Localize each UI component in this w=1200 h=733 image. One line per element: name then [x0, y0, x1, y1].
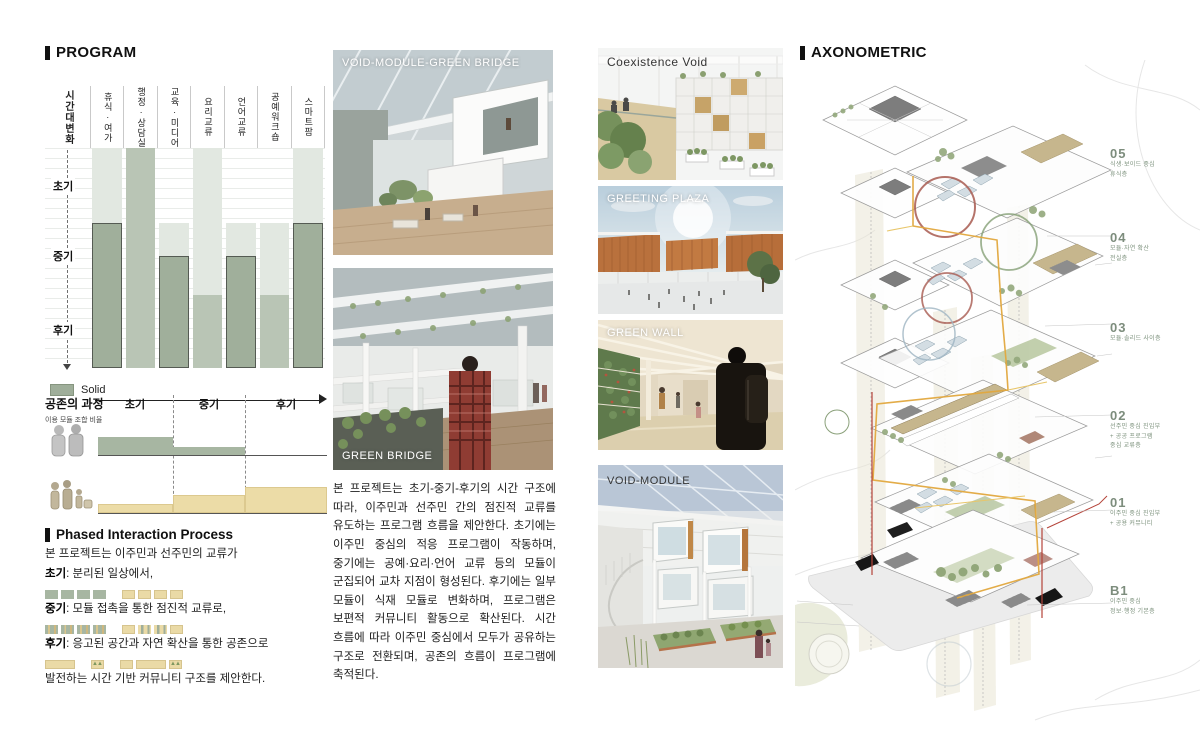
process-title: 공존의 과정 [45, 395, 104, 412]
module-swatch-g [45, 590, 58, 599]
floor-label-01: 01이주민 중심 진입부+ 공용 커뮤니티 [1110, 495, 1161, 529]
program-chart: 시간대변화 휴식·여가행정·상담실교육·미디어요리교류언어교류공예워크숍스마트팜… [45, 86, 325, 368]
floor-label-03: 03모듈·솔리드 사이층 [1110, 320, 1161, 345]
module-swatch-tg [138, 625, 151, 634]
module-swatch-gt [45, 625, 58, 634]
module-swatch-gap [78, 660, 88, 669]
column-header-0: 휴식·여가 [90, 86, 123, 148]
module-swatch-tt [169, 660, 182, 669]
coexistence-process-chart: 공존의 과정 이용 모듈 조합 비율 초기중기후기 [45, 383, 327, 525]
module-swatch-t [170, 625, 183, 634]
module-swatch-t [138, 590, 151, 599]
render-label: Coexistence Void [607, 55, 708, 69]
process-bar-tan-modules-1 [173, 495, 245, 513]
phased-item-1: 중기: 모듈 접촉을 통한 점진적 교류로, [45, 602, 332, 617]
program-bar-6 [293, 148, 323, 368]
floor-number: 01 [1110, 495, 1161, 510]
process-bar-tan-modules-0 [98, 504, 173, 513]
process-bar-tan-modules-2 [245, 487, 327, 513]
render-green-wall: GREEN WALL [598, 320, 783, 450]
module-swatch-gt [93, 625, 106, 634]
floor-description: 모듈·자연 확산 [1110, 245, 1149, 255]
program-bar-5 [260, 148, 290, 368]
column-header-3: 요리교류 [190, 86, 223, 148]
process-arrow-icon [319, 394, 332, 404]
program-bar-1 [126, 148, 156, 368]
phased-items: 초기: 분리된 일상에서,중기: 모듈 접촉을 통한 점진적 교류로,후기: 응… [45, 567, 332, 667]
module-swatch-gap [107, 660, 117, 669]
floor-label-02: 02선주민 중심 진입부+ 공공 프로그램중심 교류층 [1110, 408, 1161, 452]
module-swatch-t [122, 590, 135, 599]
program-chart-body: 초기중기후기 [45, 148, 325, 368]
title-bar-mark [45, 46, 50, 60]
floor-description: 이주민 중심 [1110, 598, 1155, 608]
floor-description: 휴식층 [1110, 171, 1155, 181]
module-swatch-row-1 [45, 621, 332, 632]
program-bars [90, 148, 325, 368]
render-label: GREETING PLAZA [607, 193, 709, 205]
program-title: PROGRAM [56, 44, 136, 61]
floor-label-05: 05식생·보이드 중심휴식층 [1110, 146, 1155, 180]
render-void-module-green-bridge: VOID-MODULE-GREEN BRIDGE [333, 50, 553, 255]
render-label: VOID-MODULE-GREEN BRIDGE [342, 57, 520, 69]
phased-intro: 본 프로젝트는 이주민과 선주민의 교류가 [45, 547, 332, 562]
floor-number: 02 [1110, 408, 1161, 423]
module-swatch-g [77, 590, 90, 599]
render-greeting-plaza: GREETING PLAZA [598, 186, 783, 314]
floor-number: 05 [1110, 146, 1155, 161]
render-green-bridge: GREEN BRIDGE [333, 268, 553, 470]
module-swatch-g [93, 590, 106, 599]
process-phase-중기: 중기 [199, 396, 219, 412]
axonometric-title: AXONOMETRIC [811, 44, 927, 61]
time-axis-label: 시간대변화 [45, 86, 90, 148]
module-swatch-gt [61, 625, 74, 634]
module-swatch-t [122, 625, 135, 634]
project-description: 본 프로젝트는 초기-중기-후기의 시간 구조에 따라, 이주민과 선주민 간의… [333, 480, 556, 685]
time-axis-arrow-icon [63, 364, 71, 374]
module-swatch-tg [154, 625, 167, 634]
module-swatch-t [170, 590, 183, 599]
program-bar-4 [226, 148, 256, 368]
module-swatch-gap [109, 590, 119, 599]
phase-label-후기: 후기 [51, 322, 75, 338]
module-swatch-tw [136, 660, 166, 669]
column-header-1: 행정·상담실 [123, 86, 156, 148]
phase-label-중기: 중기 [51, 248, 75, 264]
column-header-6: 스마트팜 [291, 86, 325, 148]
presentation-board: PROGRAM 시간대변화 휴식·여가행정·상담실교육·미디어요리교류언어교류공… [0, 0, 1200, 733]
process-bar-green-modules-1 [173, 447, 245, 455]
floor-label-B1: B1이주민 중심정보·행정 기본층 [1110, 583, 1155, 617]
title-bar-mark [45, 528, 50, 542]
module-swatch-t [120, 660, 133, 669]
title-bar-mark [800, 46, 805, 60]
render-label: GREEN BRIDGE [342, 450, 432, 462]
program-bar-0 [92, 148, 122, 368]
render-label: VOID-MODULE [607, 475, 690, 487]
program-bar-3 [193, 148, 223, 368]
phased-section-title: Phased Interaction Process [45, 527, 332, 542]
module-swatch-tw [45, 660, 75, 669]
phased-item-2: 후기: 응고된 공간과 자연 확산을 통한 공존으로 [45, 637, 332, 652]
program-section-title: PROGRAM [45, 44, 136, 61]
floor-number: 03 [1110, 320, 1161, 335]
module-swatch-t [154, 590, 167, 599]
floor-description: + 공용 커뮤니티 [1110, 520, 1161, 530]
module-swatch-gt [77, 625, 90, 634]
phase-label-초기: 초기 [51, 178, 75, 194]
module-swatch-gap [109, 625, 119, 634]
process-phase-초기: 초기 [125, 396, 145, 412]
process-bar-green-modules-0 [98, 437, 173, 455]
module-swatch-g [61, 590, 74, 599]
module-swatch-tt [91, 660, 104, 669]
floor-number: B1 [1110, 583, 1155, 598]
render-coexistence-void: Coexistence Void [598, 48, 783, 180]
module-swatch-row-2 [45, 656, 332, 667]
newcomers-sketch [45, 478, 93, 514]
residents-sketch [45, 423, 93, 457]
floor-description: 중심 교류층 [1110, 442, 1161, 452]
render-label: GREEN WALL [607, 327, 684, 339]
program-chart-header: 시간대변화 휴식·여가행정·상담실교육·미디어요리교류언어교류공예워크숍스마트팜 [45, 86, 325, 148]
column-header-2: 교육·미디어 [157, 86, 190, 148]
phased-outro: 발전하는 시간 기반 커뮤니티 구조를 제안한다. [45, 672, 332, 687]
module-swatch-row-0 [45, 586, 332, 597]
process-phase-후기: 후기 [276, 396, 296, 412]
floor-description: 선주민 중심 진입부 [1110, 423, 1161, 433]
axonometric-section-title: AXONOMETRIC [800, 44, 927, 61]
phased-interaction-section: Phased Interaction Process 본 프로젝트는 이주민과 … [45, 527, 332, 687]
floor-description: 식생·보이드 중심 [1110, 161, 1155, 171]
phased-item-0: 초기: 분리된 일상에서, [45, 567, 332, 582]
floor-label-04: 04모듈·자연 확산전실층 [1110, 230, 1149, 264]
floor-number: 04 [1110, 230, 1149, 245]
column-header-5: 공예워크숍 [257, 86, 290, 148]
row2-baseline [98, 513, 327, 514]
floor-description: 이주민 중심 진입부 [1110, 510, 1161, 520]
floor-description: 전실층 [1110, 255, 1149, 265]
render-void-module: VOID-MODULE [598, 465, 783, 668]
phased-title: Phased Interaction Process [56, 527, 233, 542]
floor-description: 모듈·솔리드 사이층 [1110, 335, 1161, 345]
row1-baseline [98, 455, 327, 456]
floor-description: + 공공 프로그램 [1110, 433, 1161, 443]
column-header-4: 언어교류 [224, 86, 257, 148]
program-bar-2 [159, 148, 189, 368]
floor-description: 정보·행정 기본층 [1110, 608, 1155, 618]
